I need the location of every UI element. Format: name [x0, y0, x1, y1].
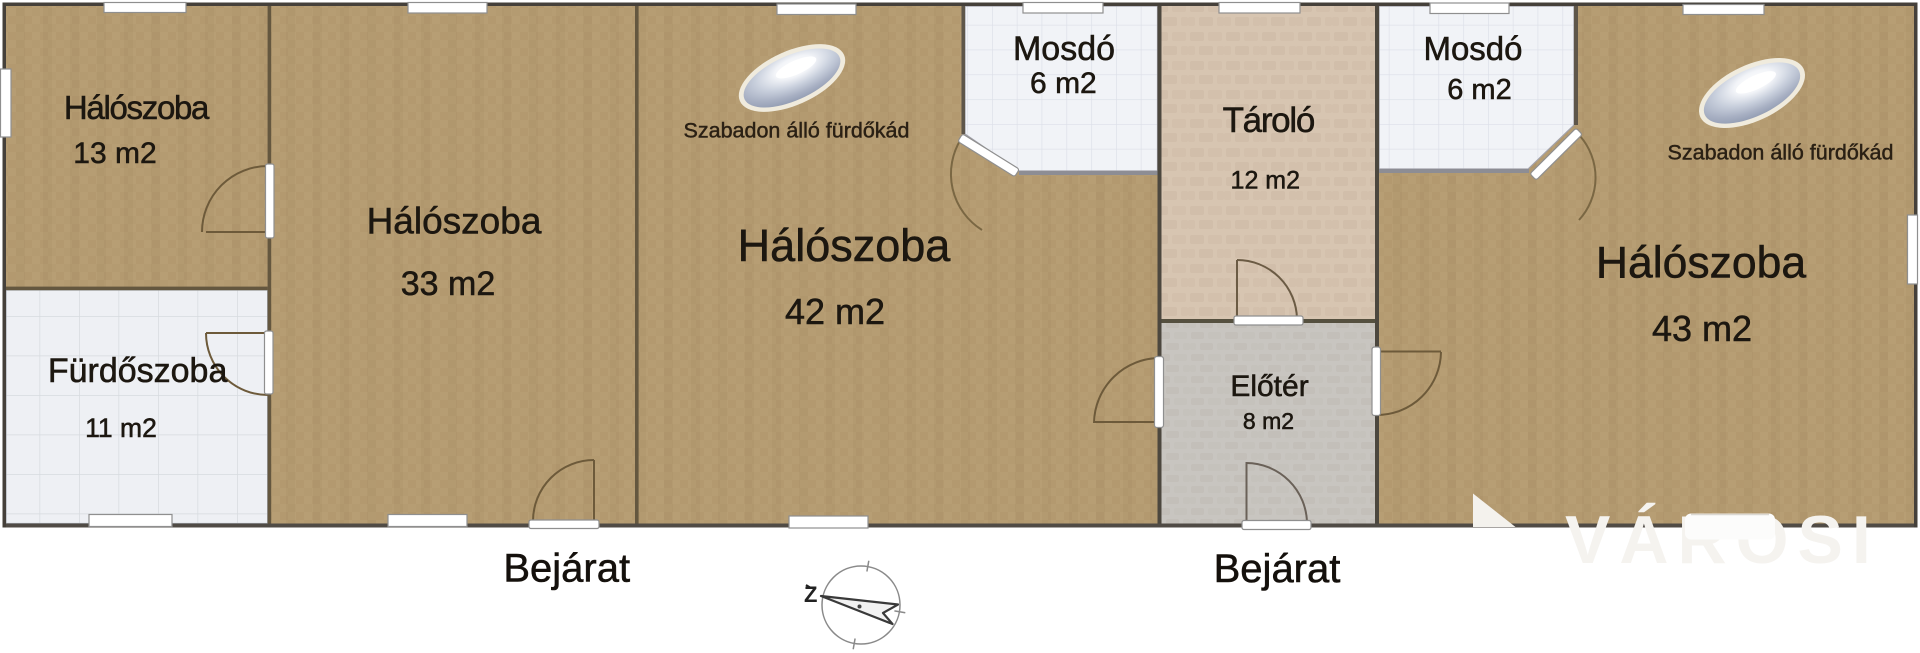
- svg-text:33 m2: 33 m2: [401, 265, 496, 303]
- svg-text:Bejárat: Bejárat: [1214, 547, 1341, 591]
- svg-text:Hálószoba: Hálószoba: [1596, 239, 1807, 288]
- svg-text:Fürdőszoba: Fürdőszoba: [48, 352, 228, 390]
- svg-text:Mosdó: Mosdó: [1013, 30, 1115, 68]
- svg-text:Hálószoba: Hálószoba: [738, 220, 952, 271]
- svg-text:Előtér: Előtér: [1230, 370, 1308, 403]
- svg-text:Bejárat: Bejárat: [503, 547, 630, 591]
- svg-text:42 m2: 42 m2: [785, 291, 885, 332]
- svg-text:Hálószoba: Hálószoba: [64, 89, 210, 126]
- svg-text:Hálószoba: Hálószoba: [367, 201, 542, 242]
- svg-text:43 m2: 43 m2: [1652, 308, 1752, 349]
- svg-text:6 m2: 6 m2: [1030, 67, 1097, 100]
- svg-text:6 m2: 6 m2: [1447, 74, 1511, 106]
- svg-text:8 m2: 8 m2: [1243, 408, 1294, 434]
- svg-text:13 m2: 13 m2: [73, 137, 156, 170]
- svg-text:Tároló: Tároló: [1223, 101, 1314, 140]
- svg-text:Szabadon álló fürdőkád: Szabadon álló fürdőkád: [684, 119, 910, 143]
- svg-text:Mosdó: Mosdó: [1423, 30, 1522, 67]
- svg-text:12 m2: 12 m2: [1231, 167, 1300, 195]
- svg-text:VÁROSI: VÁROSI: [1565, 502, 1880, 578]
- svg-text:11 m2: 11 m2: [85, 413, 157, 443]
- svg-text:Szabadon álló fürdőkád: Szabadon álló fürdőkád: [1668, 141, 1894, 165]
